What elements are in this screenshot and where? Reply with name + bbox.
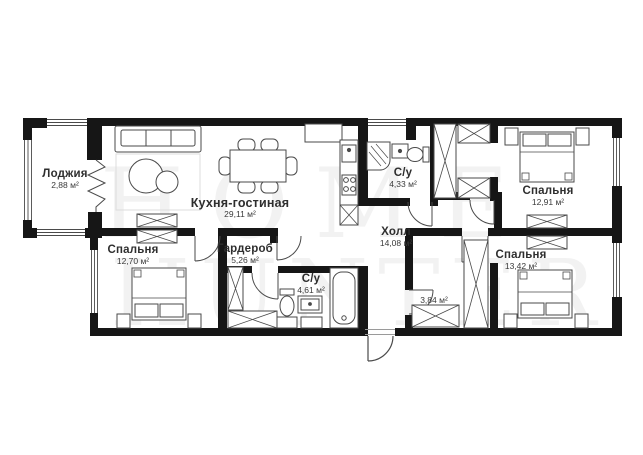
room-label-wardrobe: Гардероб 5,26 м² [217,243,273,266]
vanity-icon [298,296,322,313]
room-label-loggia: Лоджия 2,88 м² [42,168,87,191]
bed-icon [504,270,588,328]
room-label-bathroom-top: С/у 4,33 м² [389,167,417,190]
toilet-icon [407,147,429,162]
sink-icon [392,144,408,158]
accordion-door [88,160,105,212]
room-label-kitchen-living: Кухня-гостиная 29,11 м² [191,196,290,220]
dining-table-icon [219,139,297,193]
hall-closet-icon [434,124,490,198]
bed-icon [505,128,589,182]
bathtub-icon [330,268,358,328]
coffee-table-icon [156,171,178,193]
room-label-bedroom-left: Спальня 12,70 м² [107,244,158,267]
closet-cabinet-icon [412,240,488,328]
toilet-icon [280,289,294,316]
washer-icon [273,317,322,328]
tv-unit-icon [527,236,567,249]
room-label-bedroom-bot-right: Спальня 13,42 м² [495,249,546,272]
room-label-hall: Холл 14,08 м² [380,226,412,249]
room-label-closet: 3,84 м² [420,296,448,306]
room-label-bathroom-bottom: С/у 4,61 м² [297,273,325,296]
floor-plan-stage: HOME HUNTER [0,0,643,455]
door-bathroom-bottom [252,273,278,299]
shower-icon [367,142,390,170]
door-bedroom-top-right [470,200,494,224]
sofa-icon [115,126,201,152]
kitchen-counter-icon [340,140,358,225]
kitchen-cabinet-icon [305,124,342,142]
tv-unit-icon [527,215,567,228]
entrance-door [368,336,393,361]
bed-icon [117,268,201,328]
floor-plan-svg [0,0,643,455]
furniture-layer [115,124,589,328]
room-label-bedroom-top-right: Спальня 12,91 м² [522,185,573,208]
door-bathroom-top [408,202,432,226]
door-wardrobe [277,236,301,260]
